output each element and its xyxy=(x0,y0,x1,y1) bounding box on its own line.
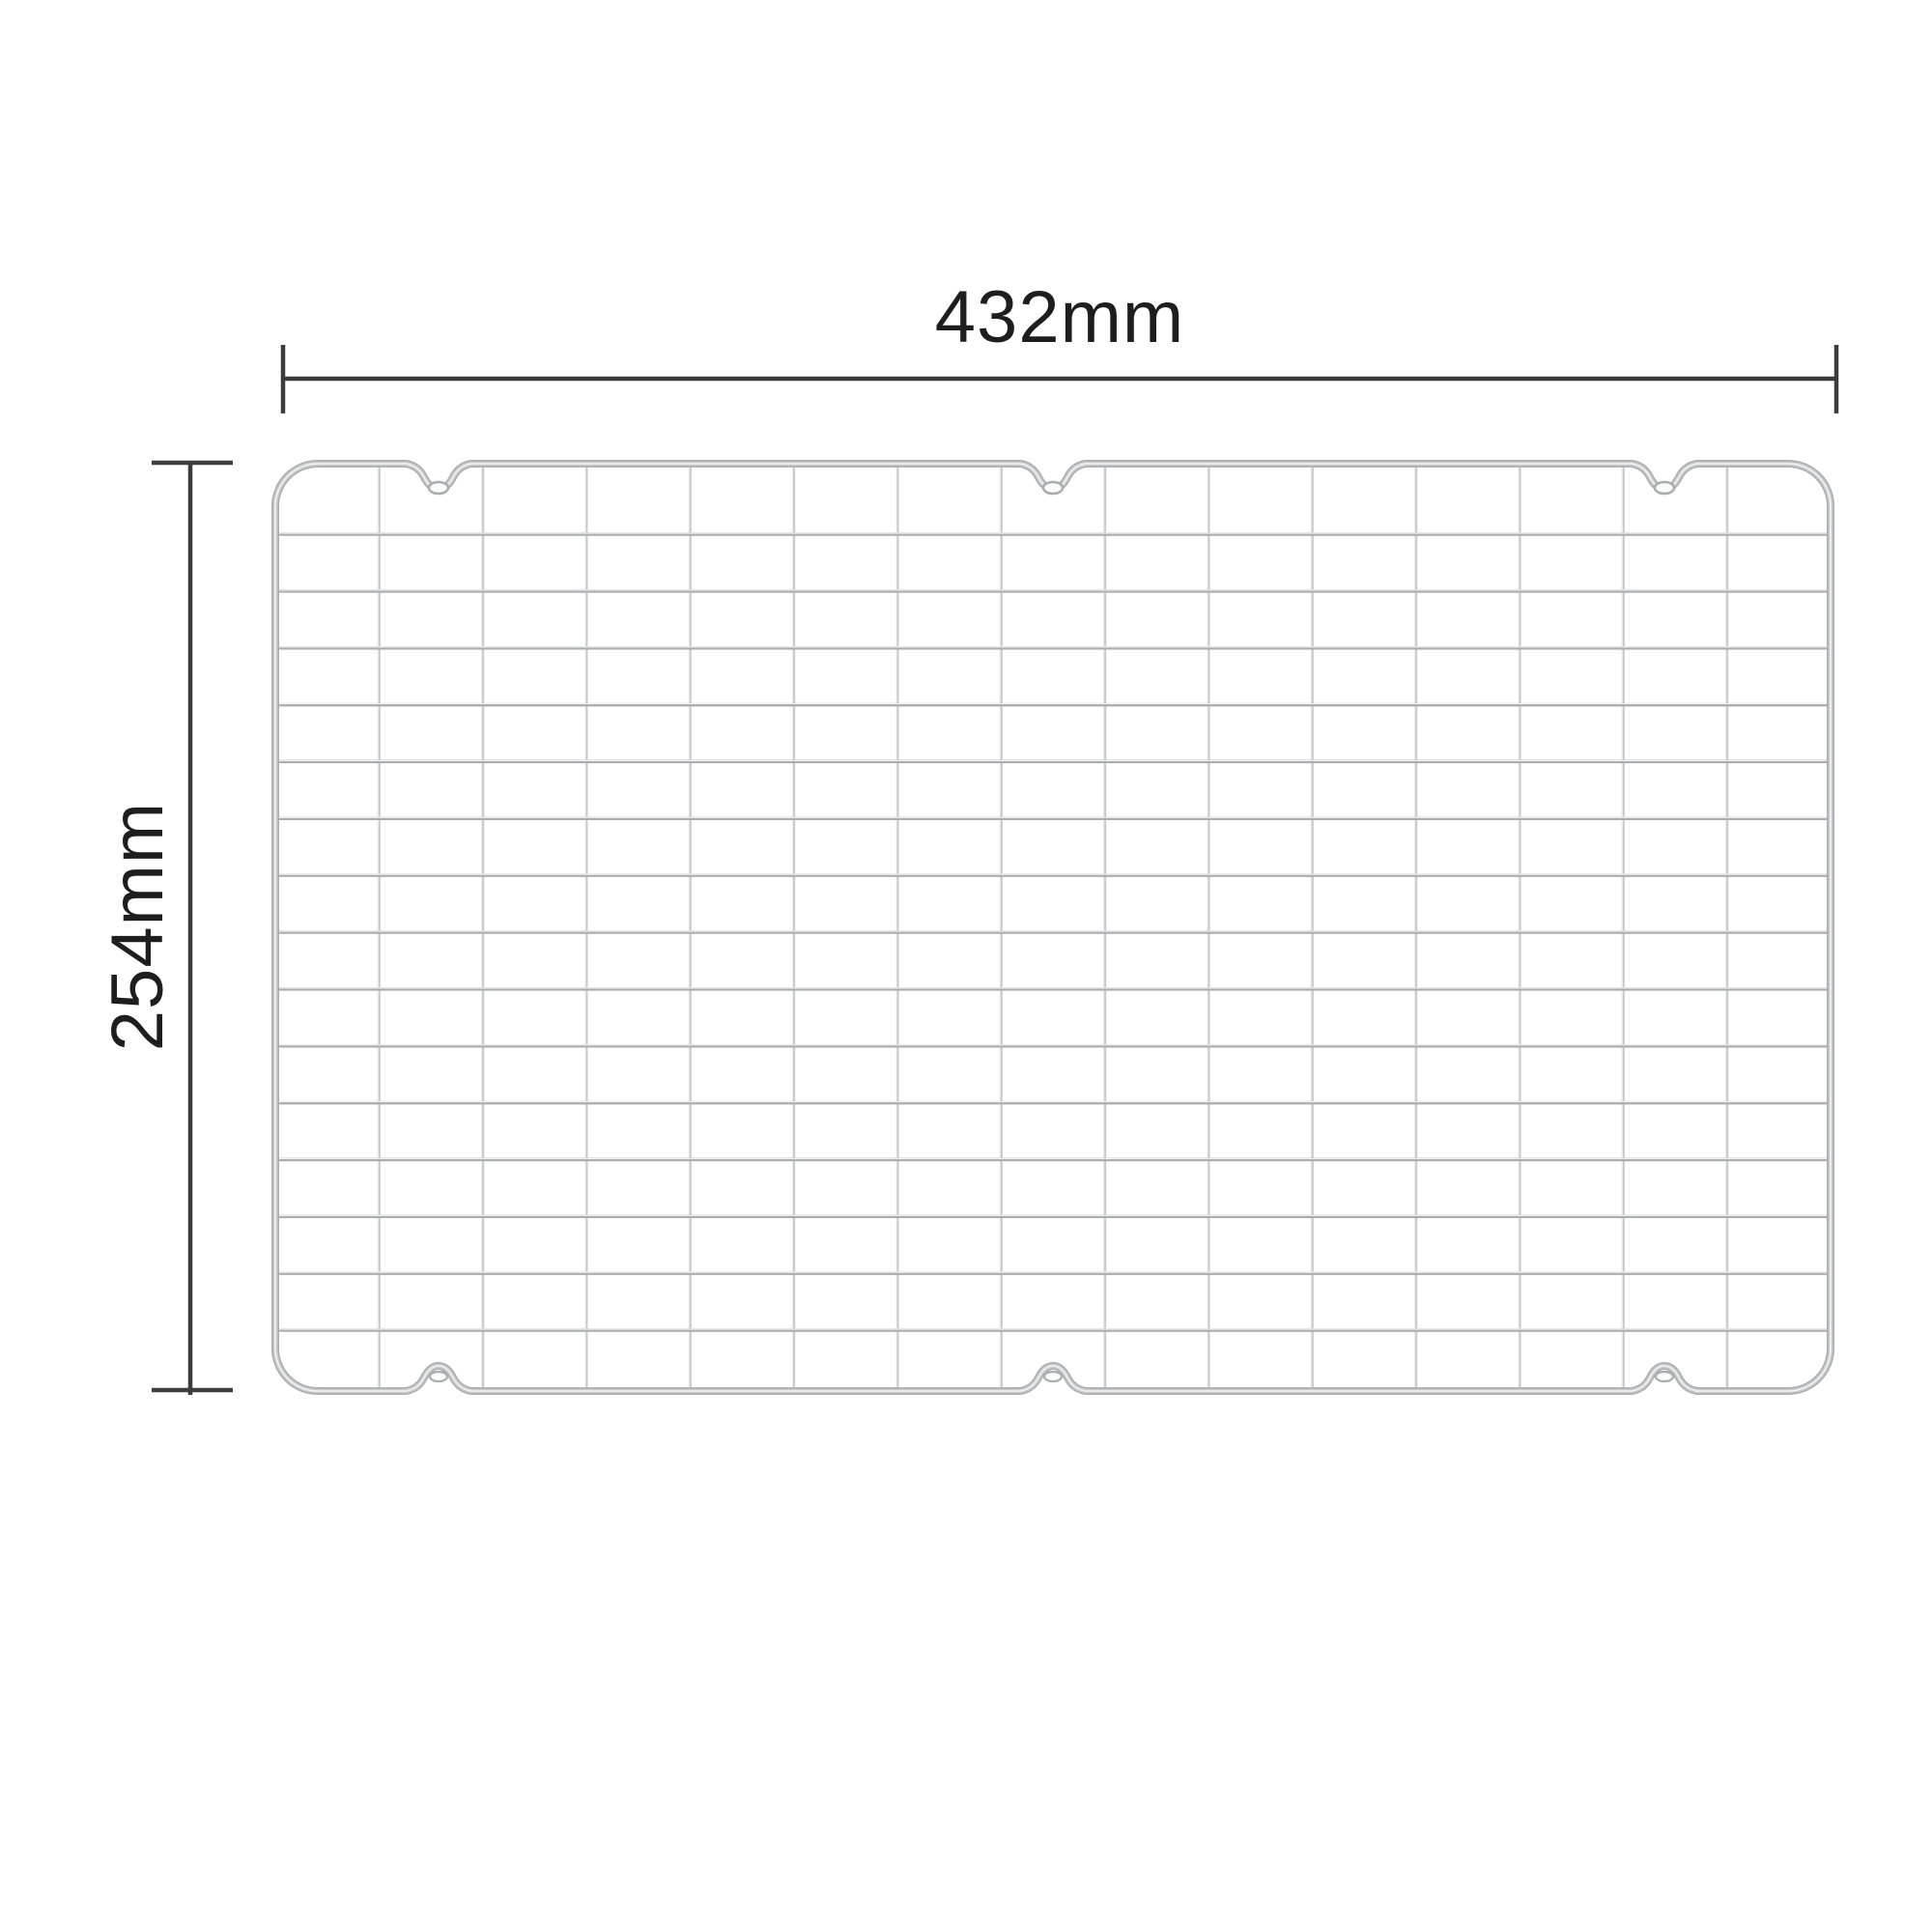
weld-loop-top xyxy=(1655,482,1674,494)
product-spec-image: 432mm 254mm xyxy=(0,0,1932,1932)
weld-loop-bottom xyxy=(430,1372,447,1381)
weld-loop-bottom xyxy=(1656,1372,1673,1381)
width-dimension-label: 432mm xyxy=(770,281,1350,355)
rack-frame-highlight xyxy=(275,464,1831,1391)
height-dimension-label: 254mm xyxy=(101,637,175,1216)
rack-frame-outline xyxy=(275,464,1831,1391)
dimension-annotations xyxy=(152,345,1836,1395)
weld-loop-top xyxy=(1043,482,1063,494)
rack-frame-body xyxy=(275,464,1831,1391)
weld-loop-bottom xyxy=(1044,1372,1062,1381)
weld-loop-top xyxy=(429,482,448,494)
wire-rack xyxy=(275,464,1831,1391)
